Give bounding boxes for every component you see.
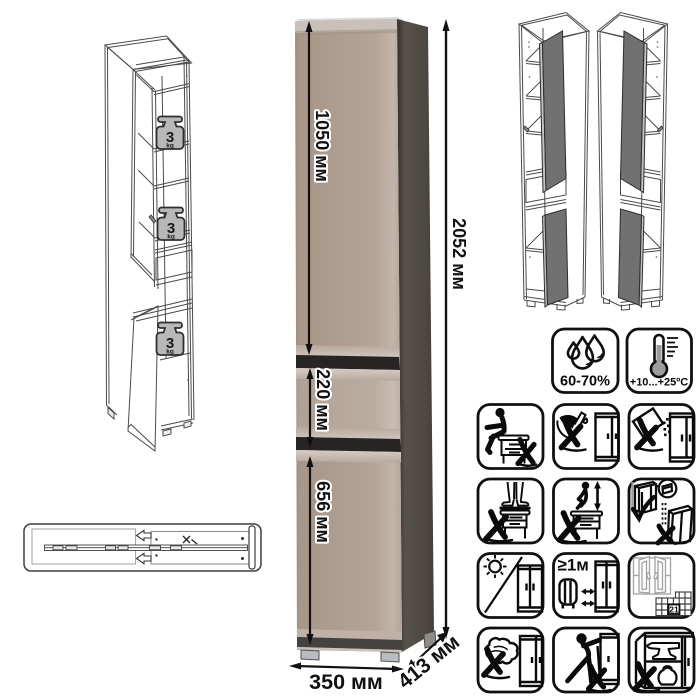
svg-text:21: 21 bbox=[669, 605, 679, 615]
svg-text:kg: kg bbox=[166, 143, 174, 150]
svg-text:2052 мм: 2052 мм bbox=[449, 218, 469, 290]
svg-text:kg: kg bbox=[166, 349, 174, 356]
svg-text:60-70%: 60-70% bbox=[560, 374, 610, 390]
svg-text:kg: kg bbox=[167, 234, 175, 241]
svg-text:+10...+25ºC: +10...+25ºC bbox=[630, 377, 689, 389]
svg-text:1050 мм: 1050 мм bbox=[312, 110, 332, 182]
svg-text:656 мм: 656 мм bbox=[313, 481, 333, 543]
svg-text:350 мм: 350 мм bbox=[309, 670, 383, 694]
svg-text:≥1м: ≥1м bbox=[558, 556, 589, 575]
svg-text:220 мм: 220 мм bbox=[313, 369, 333, 431]
